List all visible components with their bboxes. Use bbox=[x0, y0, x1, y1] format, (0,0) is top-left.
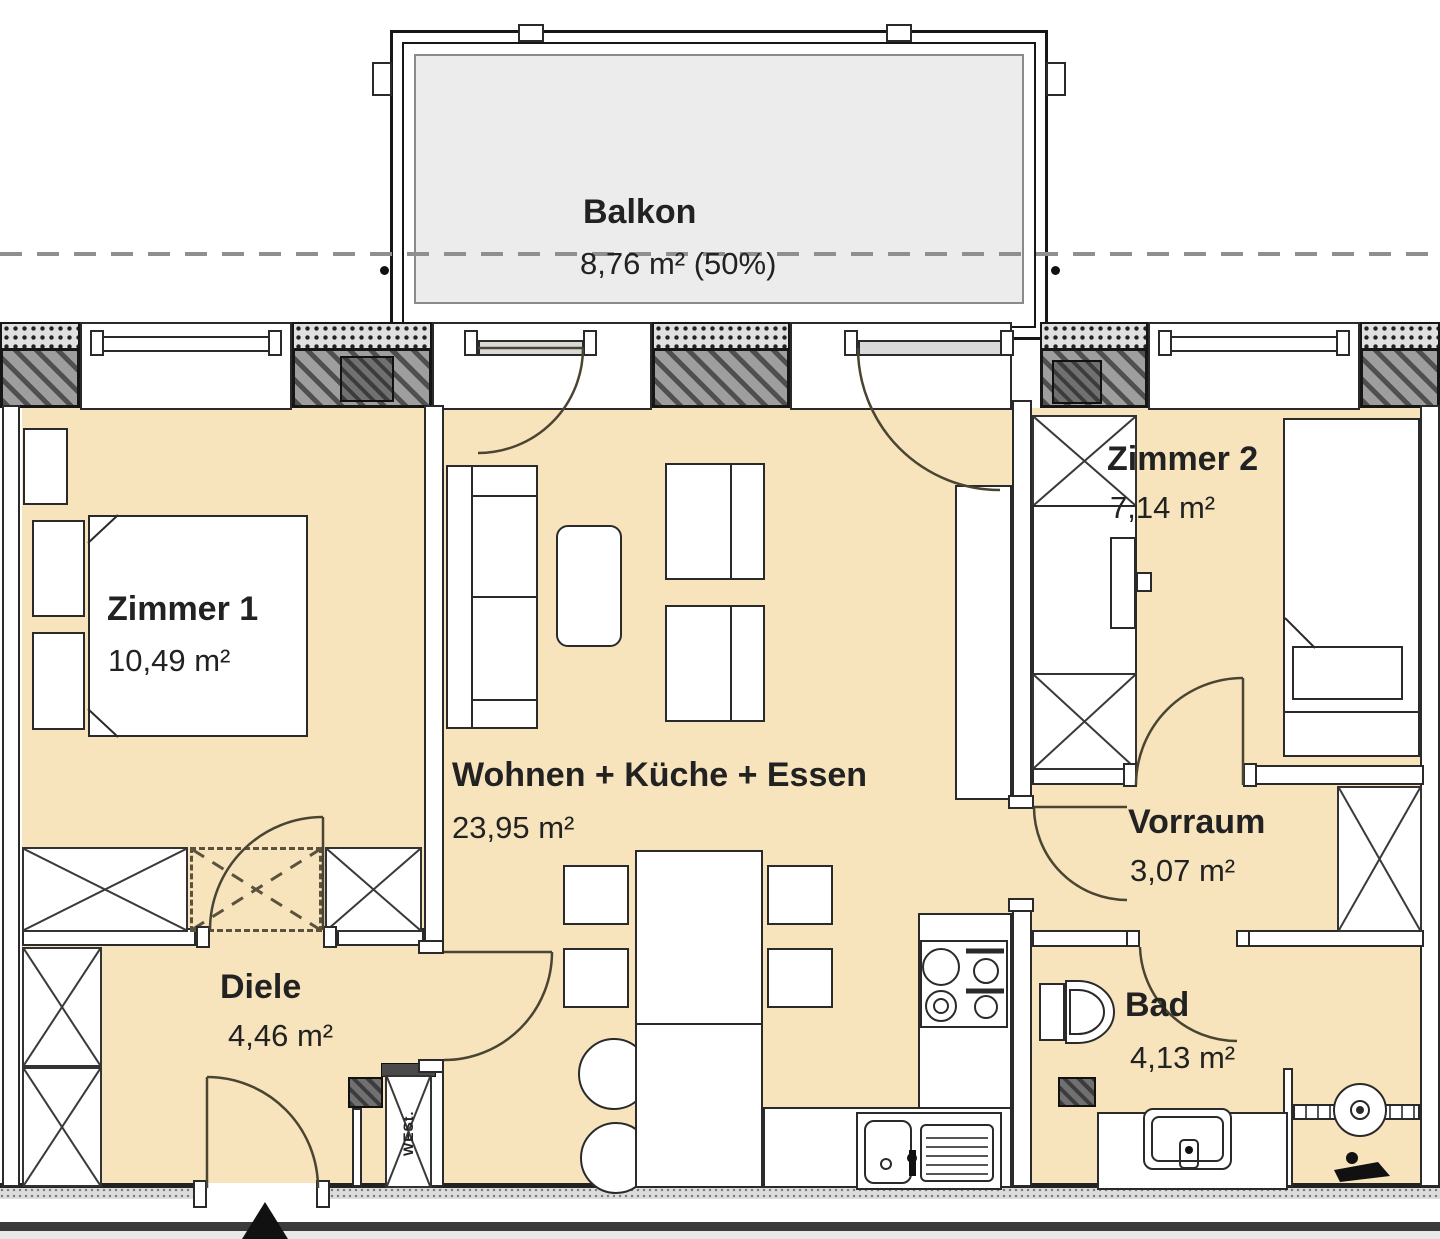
shower-rail bbox=[1293, 1104, 1420, 1120]
jamb bbox=[1236, 930, 1250, 947]
bottom-wall-outer-line bbox=[0, 1222, 1440, 1231]
floorplan: WESt. bbox=[0, 0, 1440, 1239]
bed-zimmer2 bbox=[1283, 418, 1420, 757]
pier3-masonry bbox=[652, 348, 790, 408]
pier1-insulation bbox=[0, 322, 80, 350]
window-zimmer1-jamb-right bbox=[268, 330, 282, 356]
wall-living-bad-lower bbox=[1012, 900, 1032, 1187]
jamb bbox=[323, 926, 337, 948]
jamb bbox=[1243, 763, 1257, 787]
balcony-door-right-opening bbox=[790, 322, 1012, 410]
label-balkon-area: 8,76 m² (50%) bbox=[580, 248, 776, 279]
wall-vorraum-bad-left bbox=[1032, 930, 1140, 947]
pier5-insulation bbox=[1360, 322, 1440, 350]
section-point-left bbox=[380, 266, 389, 275]
label-zimmer2-area: 7,14 m² bbox=[1110, 492, 1215, 523]
desk-zimmer2 bbox=[1110, 537, 1136, 629]
shaft-label: WESt. bbox=[382, 1085, 434, 1181]
opening-vorraum bbox=[1012, 809, 1032, 900]
pier1-masonry bbox=[0, 348, 80, 408]
coffee-table bbox=[556, 525, 622, 647]
chair bbox=[563, 865, 629, 925]
pier5-masonry bbox=[1360, 348, 1440, 408]
jamb bbox=[1008, 898, 1034, 912]
pier2-column bbox=[340, 356, 394, 402]
desk-zimmer2-chair bbox=[1136, 572, 1152, 592]
balcony-rail-stub-right bbox=[1046, 62, 1066, 96]
sofa bbox=[446, 465, 538, 729]
bed-zimmer2-foot bbox=[1292, 646, 1403, 700]
label-bad-area: 4,13 m² bbox=[1130, 1042, 1235, 1073]
wall-shaft-stub bbox=[352, 1108, 362, 1187]
column-bad bbox=[1058, 1077, 1096, 1107]
wardrobe-diele-upper bbox=[22, 947, 102, 1067]
wall-zimmer1-living-upper bbox=[424, 405, 444, 954]
column-diele bbox=[348, 1077, 383, 1108]
wall-vorraum-bad-right bbox=[1238, 930, 1424, 947]
nightstand-zimmer1-b bbox=[32, 632, 85, 730]
opening-zimmer2 bbox=[1135, 765, 1245, 785]
balcony-rail-tick-left bbox=[518, 24, 544, 42]
label-diele: Diele bbox=[220, 970, 301, 1004]
jamb bbox=[418, 940, 444, 954]
dining-table-lower bbox=[635, 1023, 763, 1188]
label-wohnen: Wohnen + Küche + Essen bbox=[452, 758, 867, 792]
balcony-rail-tick-right bbox=[886, 24, 912, 42]
wardrobe-niche-left bbox=[22, 847, 188, 932]
label-vorraum-area: 3,07 m² bbox=[1130, 855, 1235, 886]
jamb bbox=[196, 926, 210, 948]
corridor-strip bbox=[0, 1231, 1440, 1239]
jamb bbox=[1126, 930, 1140, 947]
jamb bbox=[193, 1180, 207, 1208]
loveseat-upper bbox=[665, 463, 765, 580]
balcony-door-right-jamb-b bbox=[1000, 330, 1014, 356]
sink-basin bbox=[864, 1120, 912, 1184]
label-vorraum: Vorraum bbox=[1128, 805, 1265, 839]
section-point-right bbox=[1051, 266, 1060, 275]
label-bad: Bad bbox=[1125, 988, 1189, 1022]
balcony-door-left-jamb-a bbox=[464, 330, 478, 356]
chair bbox=[563, 948, 629, 1008]
cooktop bbox=[920, 940, 1008, 1028]
label-zimmer2: Zimmer 2 bbox=[1107, 442, 1258, 476]
entry-threshold bbox=[207, 1183, 316, 1200]
label-diele-area: 4,46 m² bbox=[228, 1020, 333, 1051]
window-zimmer2-sash bbox=[1168, 336, 1340, 352]
loveseat-lower bbox=[665, 605, 765, 722]
jamb bbox=[418, 1059, 444, 1073]
jamb bbox=[1123, 763, 1137, 787]
tall-cabinet bbox=[955, 485, 1012, 800]
wardrobe-diele-lower bbox=[22, 1067, 102, 1187]
window-zimmer2-jamb-right bbox=[1336, 330, 1350, 356]
pier4-insulation bbox=[1040, 322, 1148, 350]
label-wohnen-area: 23,95 m² bbox=[452, 812, 574, 843]
wall-left bbox=[2, 405, 20, 1187]
wall-right bbox=[1420, 405, 1440, 1187]
wardrobe-optional-dashed bbox=[190, 847, 322, 932]
wardrobe-vorraum bbox=[1337, 786, 1422, 932]
nightstand-zimmer1-a bbox=[32, 520, 85, 617]
balcony-rail-stub-left bbox=[372, 62, 392, 96]
opening-living-diele bbox=[424, 952, 444, 1063]
wall-living-vorraum-upper bbox=[1012, 400, 1032, 809]
window-zimmer2-jamb-left bbox=[1158, 330, 1172, 356]
wall-zimmer2-vorraum-right bbox=[1245, 765, 1424, 785]
wardrobe-zimmer2-bottom bbox=[1032, 673, 1137, 770]
dining-table-upper bbox=[635, 850, 763, 1025]
balcony-door-right-leaf bbox=[858, 340, 1002, 356]
balcony-door-right-jamb-a bbox=[844, 330, 858, 356]
label-zimmer1-area: 10,49 m² bbox=[108, 645, 230, 676]
label-balkon: Balkon bbox=[583, 195, 696, 229]
jamb bbox=[316, 1180, 330, 1208]
bottom-wall-cavity bbox=[0, 1199, 1440, 1222]
balcony-door-left-jamb-b bbox=[583, 330, 597, 356]
chair bbox=[767, 948, 833, 1008]
opening-bad bbox=[1140, 930, 1238, 947]
window-zimmer1-sash bbox=[100, 336, 272, 352]
wardrobe-niche-right bbox=[325, 847, 422, 932]
jamb bbox=[1008, 795, 1034, 809]
drainboard-ridges bbox=[926, 1130, 988, 1176]
label-zimmer1: Zimmer 1 bbox=[107, 592, 258, 626]
pier2-insulation bbox=[292, 322, 432, 350]
balcony-door-left-leaf bbox=[478, 340, 584, 356]
pier3-insulation bbox=[652, 322, 790, 350]
dresser-zimmer1 bbox=[23, 428, 68, 505]
chair bbox=[767, 865, 833, 925]
pier4-column bbox=[1052, 360, 1102, 404]
window-zimmer1-jamb-left bbox=[90, 330, 104, 356]
vanity-sink-inner bbox=[1151, 1116, 1224, 1162]
